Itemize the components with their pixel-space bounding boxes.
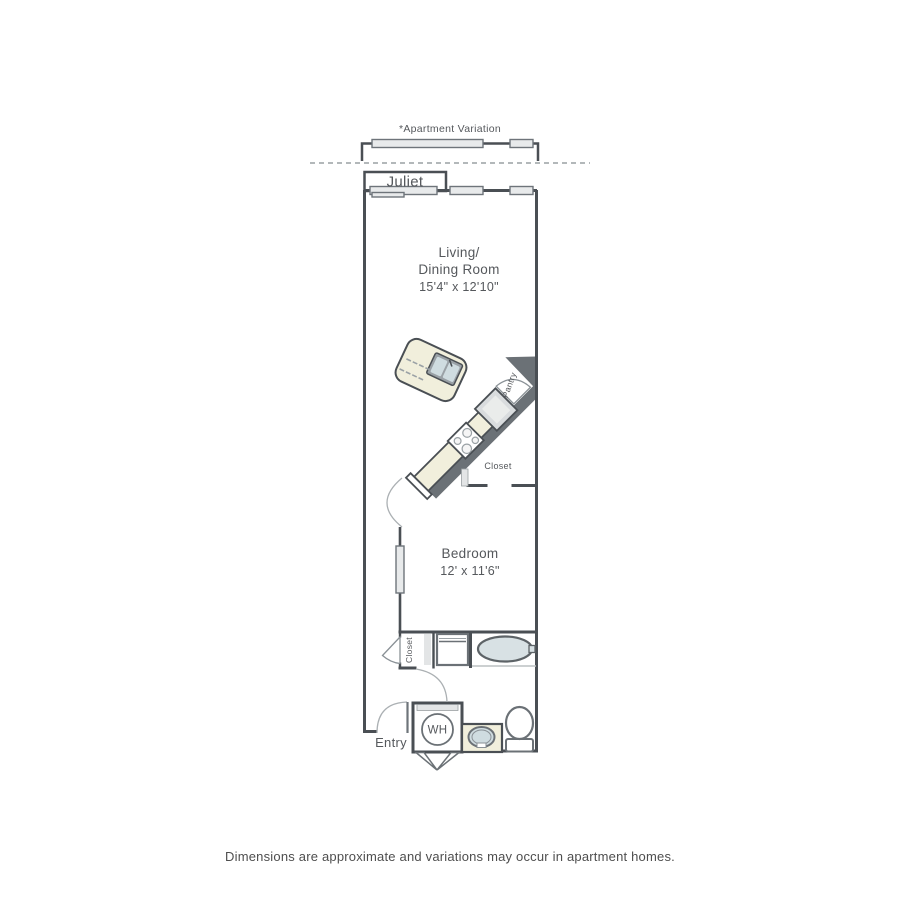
entry-label: Entry [375,735,407,750]
toilet-tank [506,739,533,752]
bathtub-basin [478,637,532,662]
floor-plan-page: *Apartment Variation Juliet Living/ Dini… [0,0,900,900]
bathroom-door-arc [416,669,447,702]
bedroom-door-arc [387,478,402,527]
variation-label: *Apartment Variation [399,123,501,135]
wh-door-leaf [416,753,437,771]
kitchen-closet-label: Closet [484,461,512,471]
bedroom-dimensions: 12' x 11'6" [440,564,500,578]
floor-plan-drawing: *Apartment Variation Juliet Living/ Dini… [0,0,900,900]
hall-closet-shelf [424,634,431,665]
washer-dryer [437,634,468,665]
disclaimer-text: Dimensions are approximate and variation… [225,849,675,864]
water-heater-label: WH [428,725,448,737]
living-window [510,187,533,195]
apartment-variation-outline [362,140,538,162]
toilet [506,707,533,752]
bedroom-window [396,546,404,593]
toilet-bowl [506,707,533,739]
kitchen-closet-side [462,469,469,486]
kitchen-island [392,336,469,405]
living-room-dimensions: 15'4" x 12'10" [419,280,499,294]
bedroom-label: Bedroom [442,546,499,561]
variation-window [510,140,533,148]
door-arcs [377,478,447,733]
wh-closet-header [417,705,458,711]
entry-door-arc [377,702,407,733]
juliet-label: Juliet [387,174,424,191]
living-room-label-line1: Living/ [438,245,479,260]
living-room-label-line2: Dining Room [418,262,499,277]
bathroom-vanity [462,724,502,752]
vanity-faucet [477,743,486,748]
water-heater-closet [413,703,462,770]
bathtub [478,637,535,662]
living-window [450,187,483,195]
hall-closet-label: Closet [404,637,414,663]
juliet-sliding-panel [372,193,404,198]
wh-door-leaf [437,753,459,771]
variation-window [372,140,483,148]
bathtub-faucet [529,646,535,653]
hall-closet-door [383,637,401,664]
